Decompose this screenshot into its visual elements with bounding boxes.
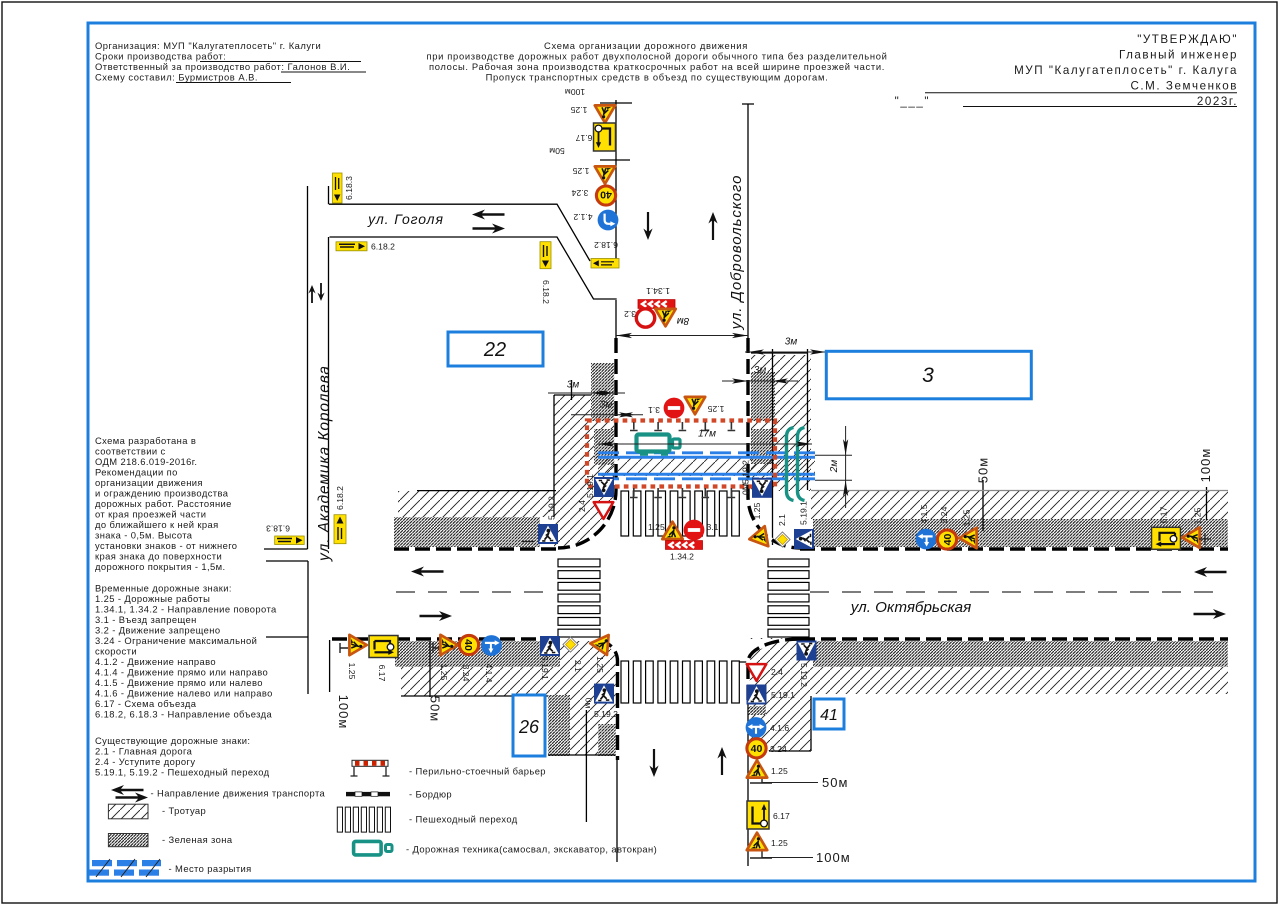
svg-text:и ограждению производства: и ограждению производства xyxy=(95,488,229,499)
svg-text:6.17 - Схема объезда: 6.17 - Схема объезда xyxy=(95,698,197,709)
svg-text:100м: 100м xyxy=(336,695,351,730)
svg-text:2.4 - Уступите дорогу: 2.4 - Уступите дорогу xyxy=(95,756,195,767)
svg-text:4.1.4 - Движение прямо или нап: 4.1.4 - Движение прямо или направо xyxy=(95,667,268,678)
svg-text:Существующие дорожные знаки:: Существующие дорожные знаки: xyxy=(95,735,250,746)
svg-text:5.19.1: 5.19.1 xyxy=(771,690,795,700)
svg-text:"___": "___" xyxy=(895,95,930,108)
svg-text:8м: 8м xyxy=(677,315,690,326)
svg-text:4.1.2 - Движение направо: 4.1.2 - Движение направо xyxy=(95,656,216,667)
svg-text:2.1: 2.1 xyxy=(573,660,583,672)
svg-text:2м: 2м xyxy=(829,460,840,474)
svg-text:2.1: 2.1 xyxy=(777,514,787,526)
svg-text:3.1: 3.1 xyxy=(707,522,719,532)
svg-text:4.1.5: 4.1.5 xyxy=(919,504,929,523)
svg-text:3: 3 xyxy=(922,364,934,387)
svg-text:5.19.2: 5.19.2 xyxy=(799,663,809,687)
svg-text:ул. Академика Королева: ул. Академика Королева xyxy=(316,365,333,562)
svg-text:3.1 - Въезд запрещен: 3.1 - Въезд запрещен xyxy=(95,614,197,625)
svg-text:50м: 50м xyxy=(976,457,991,483)
svg-text:Временные дорожные знаки:: Временные дорожные знаки: xyxy=(95,583,232,594)
svg-text:Сроки производства работ:: Сроки производства работ: xyxy=(95,51,226,62)
svg-text:скорости: скорости xyxy=(95,646,137,657)
svg-text:6.18.2: 6.18.2 xyxy=(594,240,618,250)
svg-text:1.34.1, 1.34.2 - Направление п: 1.34.1, 1.34.2 - Направление поворота xyxy=(95,604,277,615)
svg-text:Схема организации дорожного дв: Схема организации дорожного движения xyxy=(544,40,748,51)
svg-text:1.25: 1.25 xyxy=(771,766,788,776)
svg-text:6.17: 6.17 xyxy=(377,665,387,682)
svg-text:100м: 100м xyxy=(565,87,585,97)
svg-text:ОДМ 218.6.019-2016г.: ОДМ 218.6.019-2016г. xyxy=(95,456,197,467)
svg-text:1.34.1: 1.34.1 xyxy=(646,286,670,296)
svg-text:1.25: 1.25 xyxy=(439,664,449,681)
svg-text:организации движения: организации движения xyxy=(95,477,203,488)
svg-text:соответствии с: соответствии с xyxy=(95,446,166,457)
svg-text:0м: 0м xyxy=(584,698,594,709)
svg-text:- Зеленая зона: - Зеленая зона xyxy=(162,834,233,845)
svg-text:50м: 50м xyxy=(428,696,443,722)
svg-text:- Бордюр: - Бордюр xyxy=(409,789,452,800)
svg-text:4.1.5 - Движение прямо или нал: 4.1.5 - Движение прямо или налево xyxy=(95,677,263,688)
svg-text:дорожного покрытия - 1,5м.: дорожного покрытия - 1,5м. xyxy=(95,561,225,572)
svg-text:2.1 - Главная дорога: 2.1 - Главная дорога xyxy=(95,746,193,757)
svg-text:2.4: 2.4 xyxy=(771,667,783,677)
svg-text:50м: 50м xyxy=(549,146,565,156)
svg-text:5.19.1: 5.19.1 xyxy=(540,656,550,680)
svg-text:3.2: 3.2 xyxy=(624,309,636,319)
svg-text:- Пешеходный переход: - Пешеходный переход xyxy=(409,814,518,825)
svg-text:100м: 100м xyxy=(1198,448,1213,483)
svg-text:1.25: 1.25 xyxy=(570,105,587,115)
svg-text:1.25: 1.25 xyxy=(1193,507,1203,524)
svg-text:3м: 3м xyxy=(600,400,613,411)
svg-text:1.25 - Дорожные работы: 1.25 - Дорожные работы xyxy=(95,593,210,604)
svg-text:Организация: МУП "Калугатеплос: Организация: МУП "Калугатеплосеть" г. Ка… xyxy=(95,40,321,51)
svg-text:3.2 - Движение запрещено: 3.2 - Движение запрещено xyxy=(95,625,220,636)
svg-text:17м: 17м xyxy=(698,429,716,440)
svg-text:3.24: 3.24 xyxy=(461,665,471,682)
svg-text:4.1.2: 4.1.2 xyxy=(573,212,592,222)
svg-text:3.24: 3.24 xyxy=(571,188,588,198)
svg-text:3.24: 3.24 xyxy=(770,744,787,754)
svg-text:Рекомендации по: Рекомендации по xyxy=(95,467,178,478)
svg-text:1.25: 1.25 xyxy=(648,522,665,532)
svg-text:от края проезжей части: от края проезжей части xyxy=(95,509,206,520)
svg-text:3м: 3м xyxy=(754,365,767,376)
svg-text:3м: 3м xyxy=(785,337,798,348)
svg-text:4.1.6: 4.1.6 xyxy=(770,723,789,733)
svg-text:1.25: 1.25 xyxy=(347,663,357,680)
svg-text:5.19.2: 5.19.2 xyxy=(547,496,557,520)
svg-text:Схему составил: Бурмистров А.В: Схему составил: Бурмистров А.В. xyxy=(95,72,258,83)
svg-text:5.19.1: 5.19.1 xyxy=(585,474,595,498)
svg-text:1.34.2: 1.34.2 xyxy=(670,552,694,562)
svg-text:4.1.4: 4.1.4 xyxy=(484,663,494,682)
svg-text:3.1: 3.1 xyxy=(648,405,660,415)
svg-text:дорожных работ. Расстояние: дорожных работ. Расстояние xyxy=(95,498,232,509)
svg-text:ул. Гоголя: ул. Гоголя xyxy=(367,211,444,227)
svg-text:- Дорожная техника(самосвал, э: - Дорожная техника(самосвал, экскаватор,… xyxy=(406,844,657,855)
svg-text:6.18.2: 6.18.2 xyxy=(371,242,395,252)
svg-text:2.4: 2.4 xyxy=(577,500,587,512)
svg-text:Главный инженер: Главный инженер xyxy=(1119,49,1238,62)
svg-text:6.17: 6.17 xyxy=(1159,506,1169,523)
svg-text:при производстве дорожных рабо: при производстве дорожных работ двухполо… xyxy=(426,51,887,62)
svg-text:1.25: 1.25 xyxy=(595,656,605,673)
svg-text:6.17: 6.17 xyxy=(575,133,592,143)
svg-text:- Тротуар: - Тротуар xyxy=(162,805,206,816)
svg-text:6.18.3: 6.18.3 xyxy=(344,176,354,200)
svg-text:6.17: 6.17 xyxy=(773,811,790,821)
svg-text:5.19.1: 5.19.1 xyxy=(799,501,809,525)
svg-text:Схема разработана в: Схема разработана в xyxy=(95,435,196,446)
svg-text:6.18.2: 6.18.2 xyxy=(541,280,551,304)
svg-text:3.24: 3.24 xyxy=(939,506,949,523)
svg-text:6.18.2, 6.18.3 - Направление о: 6.18.2, 6.18.3 - Направление объезда xyxy=(95,709,273,720)
svg-text:3.24 - Ограничение максимально: 3.24 - Ограничение максимальной xyxy=(95,635,257,646)
svg-text:МУП "Калугатеплосеть" г. Калуг: МУП "Калугатеплосеть" г. Калуга xyxy=(1014,64,1238,77)
svg-text:1.25: 1.25 xyxy=(707,404,724,414)
svg-text:1.25: 1.25 xyxy=(962,509,972,526)
svg-text:41: 41 xyxy=(820,707,838,724)
svg-text:до ближайшего к ней края: до ближайшего к ней края xyxy=(95,519,219,530)
svg-text:знака - 0,5м. Высота: знака - 0,5м. Высота xyxy=(95,530,193,541)
svg-text:5.19.1, 5.19.2 - Пешеходный пе: 5.19.1, 5.19.2 - Пешеходный переход xyxy=(95,767,270,778)
svg-text:100м: 100м xyxy=(816,850,851,865)
svg-text:5.19.2: 5.19.2 xyxy=(741,460,751,484)
svg-text:4.1.6 - Движение налево или на: 4.1.6 - Движение налево или направо xyxy=(95,688,273,699)
svg-text:установки знаков - от нижнего: установки знаков - от нижнего xyxy=(95,540,237,551)
svg-text:"УТВЕРЖДАЮ": "УТВЕРЖДАЮ" xyxy=(1137,33,1238,46)
svg-text:26: 26 xyxy=(518,717,540,737)
svg-text:- Направление движения транспо: - Направление движения транспорта xyxy=(151,788,326,799)
svg-text:5.19.2: 5.19.2 xyxy=(594,709,618,719)
svg-text:22: 22 xyxy=(483,339,506,361)
svg-text:ул. Октябрьская: ул. Октябрьская xyxy=(850,599,971,616)
svg-text:полосы. Рабочая зона производс: полосы. Рабочая зона производства кратко… xyxy=(429,61,885,72)
svg-text:1.25: 1.25 xyxy=(572,166,589,176)
svg-text:6.18.2: 6.18.2 xyxy=(335,486,345,510)
svg-text:3м: 3м xyxy=(567,380,580,391)
svg-text:края знака до поверхности: края знака до поверхности xyxy=(95,551,222,562)
svg-text:Ответственный за производство: Ответственный за производство работ: Гал… xyxy=(95,61,350,72)
svg-text:- Перильно-стоечный барьер: - Перильно-стоечный барьер xyxy=(409,766,546,777)
svg-text:- Место разрытия: - Место разрытия xyxy=(169,863,252,874)
svg-text:ул. Добровольского: ул. Добровольского xyxy=(728,175,745,331)
svg-text:6.18.3: 6.18.3 xyxy=(266,524,290,534)
svg-text:1.25: 1.25 xyxy=(752,502,762,519)
svg-text:Пропуск транспортных средств в: Пропуск транспортных средств в объезд по… xyxy=(486,72,829,83)
svg-text:50м: 50м xyxy=(822,775,848,790)
svg-text:1.25: 1.25 xyxy=(771,838,788,848)
svg-text:0М: 0М xyxy=(741,483,751,495)
svg-text:С.М. Земченков: С.М. Земченков xyxy=(1130,80,1238,93)
